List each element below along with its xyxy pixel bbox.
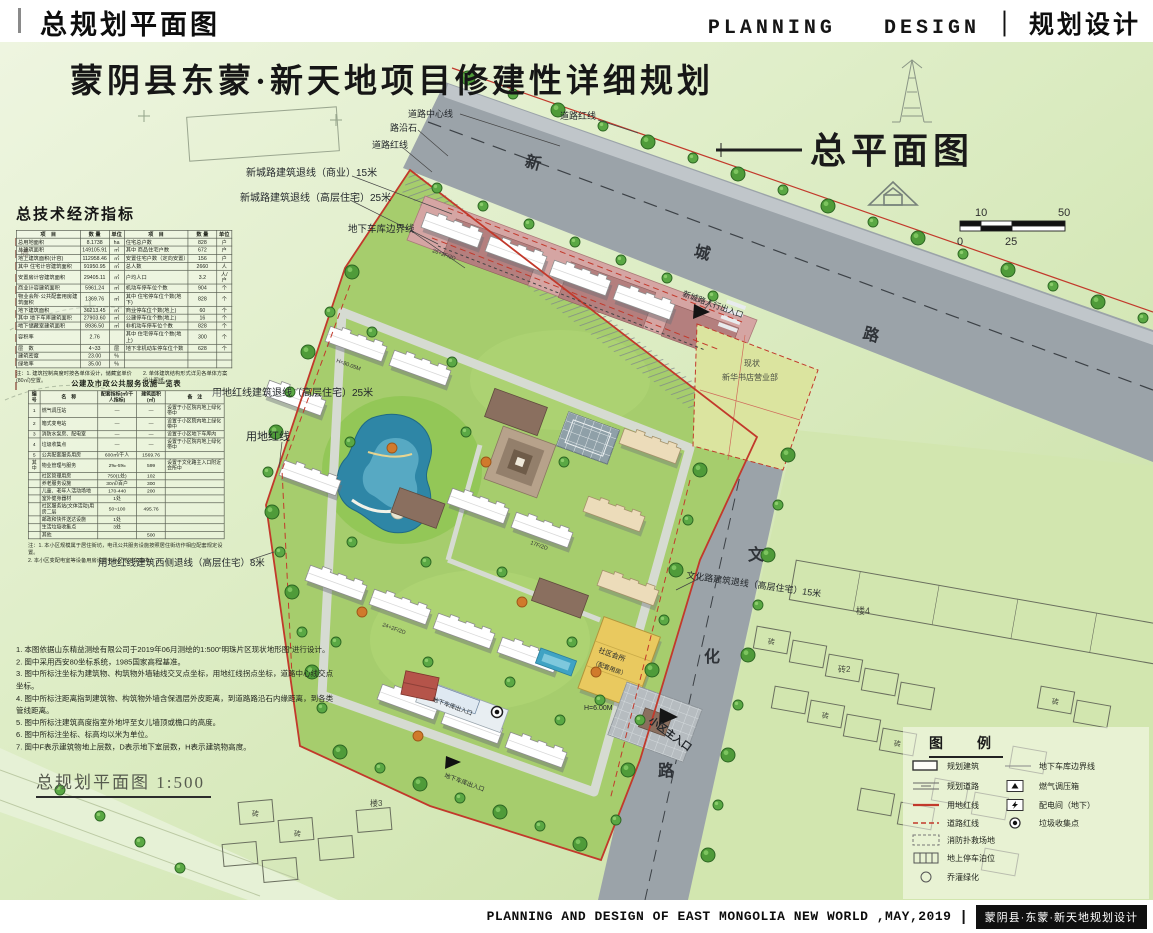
table-row: 3消防水泵房、配电室——设置于小区地下车库内 xyxy=(28,431,224,439)
table-cell: 599 xyxy=(137,459,166,472)
table-cell: 总人数 xyxy=(124,262,188,270)
legend-label: 用地红线 xyxy=(947,800,979,811)
table-cell: — xyxy=(137,404,166,417)
label-zhuan-c: 砖 xyxy=(894,739,901,748)
table-cell: 4~33 xyxy=(80,344,109,352)
table-cell: 其中 地下车库建筑面积 xyxy=(16,314,80,322)
indicators-table: 项 目 数 量 单位 项 目 数 量 单位 总用地面积8.1738ha住宅总户数… xyxy=(16,230,232,368)
legend-item-planned-road: 规划道路 xyxy=(911,779,979,793)
table-cell: 层 xyxy=(109,344,124,352)
facilities-notes: 注：1. 本小区规模属于居住街坊，电讯公共服务设施按照居住街坊作相应配套规定设置… xyxy=(28,542,224,564)
footer-bar: PLANNING AND DESIGN OF EAST MONGOLIA NEW… xyxy=(0,900,1153,933)
facilities-note-1: 注：1. 本小区规模属于居住街坊，电讯公共服务设施按照居住街坊作相应配套规定设置… xyxy=(28,542,224,557)
table-cell: 设置于小区地下车库内 xyxy=(165,431,224,439)
legend-item-gas-regulator: 燃气调压箱 xyxy=(1003,779,1079,793)
table-cell xyxy=(165,472,224,480)
table-cell: 300 xyxy=(137,480,166,488)
table-row: 物业会所·公共配套用房建筑面积1369.76㎡其中 住宅停车位个数(地下)828… xyxy=(16,292,231,306)
table-cell xyxy=(28,488,40,496)
table-cell: 200 xyxy=(137,488,166,496)
power-room-icon xyxy=(1003,798,1033,812)
label-wenhua-3: 路 xyxy=(658,761,675,780)
table-row: 邮政和快件送达设施1处 xyxy=(28,516,224,524)
plan-title: 总平面图 xyxy=(810,122,974,174)
label-existing-1: 现状 xyxy=(744,358,760,368)
drawing-notes-list: 1. 本图依据山东精益测绘有限公司于2019年06月测绘的1:500“明珠片区现… xyxy=(16,644,340,754)
trash-collection-point-icon xyxy=(492,707,503,718)
table-header-row: 项 目 数 量 单位 项 目 数 量 单位 xyxy=(16,230,231,238)
table-cell xyxy=(28,503,40,516)
table-cell xyxy=(28,516,40,524)
table-cell: 600㎡/千人 xyxy=(97,451,136,459)
legend-item-fire-rescue: 消防扑救场地 xyxy=(911,833,995,847)
table-cell: 物业管理与服务 xyxy=(40,459,97,472)
note-line: 6. 图中所标注坐标、标高均以米为单位。 xyxy=(16,729,340,741)
table-cell: 生活垃圾收集点 xyxy=(40,524,97,532)
table-cell xyxy=(137,524,166,532)
table-cell: ㎡ xyxy=(109,270,124,284)
legend-label: 地上停车泊位 xyxy=(947,853,995,864)
legend-label: 规划道路 xyxy=(947,781,979,792)
table-cell: 社区服务站(文体活动)用房二层 xyxy=(40,503,97,516)
table-row: 其中 住宅计容建筑面积91950.95㎡总人数2660人 xyxy=(16,262,231,270)
facilities-table: 编号 名 称 配套指标(㎡/千人指标) 建筑面积(㎡) 备 注 1燃气调压站——… xyxy=(28,390,224,539)
table-cell: — xyxy=(137,438,166,451)
table-cell: 2 xyxy=(28,417,40,430)
col-header: 名 称 xyxy=(40,391,97,404)
main-title: 蒙阴县东蒙·新天地项目修建性详细规划 xyxy=(70,54,714,102)
table-cell: 设置于小区院内地上绿化带中 xyxy=(165,417,224,430)
table-cell: 1369.76 xyxy=(80,292,109,306)
col-header: 数 量 xyxy=(80,230,109,238)
table-cell: 地下储藏室建筑面积 xyxy=(16,322,80,330)
legend-item-planned-building: 规划建筑 xyxy=(911,759,979,773)
table-cell: 养老服务设施 xyxy=(40,480,97,488)
col-header: 配套指标(㎡/千人指标) xyxy=(97,391,136,404)
table-cell: 个 xyxy=(217,292,232,306)
table-cell: 36213.45 xyxy=(80,306,109,314)
table-row: 儿童、老年人活动场地170-440200 xyxy=(28,488,224,496)
legend-item-garage-line: 地下车库边界线 xyxy=(1003,759,1095,773)
header-divider-bar xyxy=(18,8,21,33)
table-row: 其中物业管理与服务2‰-5‰599设置于文化路主入口附近会所中 xyxy=(28,459,224,472)
note-line: 4. 图中所标注距离指到建筑物、构筑物外墙含保温层外皮距离，到道路路沿石内缘距离… xyxy=(16,693,340,717)
table-cell: 3 xyxy=(28,431,40,439)
table-cell: 住宅总户数 xyxy=(124,238,188,246)
table-cell xyxy=(137,495,166,503)
table-cell: 邮政和快件送达设施 xyxy=(40,516,97,524)
table-cell: ㎡ xyxy=(109,314,124,322)
table-cell: 828 xyxy=(188,292,217,306)
table-cell xyxy=(165,516,224,524)
col-header: 建筑面积(㎡) xyxy=(137,391,166,404)
legend-label: 燃气调压箱 xyxy=(1039,781,1079,792)
legend-label: 垃圾收集点 xyxy=(1039,818,1079,829)
table-cell: 个 xyxy=(217,284,232,292)
table-cell: 1处 xyxy=(97,516,136,524)
tree-shrub-icon xyxy=(911,870,941,884)
table-cell xyxy=(124,352,188,360)
scale-0: 0 xyxy=(957,236,963,248)
label-lou3: 楼3 xyxy=(370,798,383,808)
table-cell: — xyxy=(97,417,136,430)
label-zhuan-a: 砖 xyxy=(768,637,775,646)
note-line: 1. 本图依据山东精益测绘有限公司于2019年06月测绘的1:500“明珠片区现… xyxy=(16,644,340,656)
legend-label: 乔灌绿化 xyxy=(947,872,979,883)
table-cell: 170-440 xyxy=(97,488,136,496)
table-cell xyxy=(124,360,188,368)
table-cell: 27903.60 xyxy=(80,314,109,322)
table-cell: ㎡ xyxy=(109,292,124,306)
label-wenhua-1: 文 xyxy=(748,545,765,564)
header-right-cn: 规划设计 xyxy=(1029,5,1141,41)
table-row: 5公共配套服务用房600㎡/千人1569.76 xyxy=(28,451,224,459)
table-cell: 物业会所·公共配套用房建筑面积 xyxy=(16,292,80,306)
table-row: 地上建筑面积(计容)112958.46㎡安置住宅户数（定向安置）156户 xyxy=(16,254,231,262)
table-cell xyxy=(188,360,217,368)
label-road-red-b: 道路红线 xyxy=(372,139,408,150)
table-row: 地下储藏室建筑面积8936.50㎡非机动车停车位个数828个 xyxy=(16,322,231,330)
table-cell: 机动车停车位个数 xyxy=(124,284,188,292)
label-setback-highrise: 新城路建筑退线（高层住宅）25米 xyxy=(240,191,391,204)
table-cell: 安置住宅户数（定向安置） xyxy=(124,254,188,262)
table-cell: 3处 xyxy=(97,524,136,532)
table-cell: 公共配套服务用房 xyxy=(40,451,97,459)
col-header: 项 目 xyxy=(124,230,188,238)
table-row: 4垃圾收集点——设置于小区院内地上绿化带中 xyxy=(28,438,224,451)
planned-building-icon xyxy=(911,759,941,773)
road-red-line-icon xyxy=(911,816,941,830)
table-cell: 户 xyxy=(217,246,232,254)
facilities-table-block: 公建及市政公共服务设施一览表 编号 名 称 配套指标(㎡/千人指标) 建筑面积(… xyxy=(28,378,233,662)
table-cell xyxy=(165,503,224,516)
table-cell: 其中 住宅计容建筑面积 xyxy=(16,262,80,270)
table-cell: % xyxy=(109,352,124,360)
table-cell: 50~100 xyxy=(97,503,136,516)
top-header-bar: 总规划平面图 PLANNING DESIGN ｜ 规划设计 xyxy=(0,0,1153,42)
label-road-center: 道路中心线 xyxy=(408,108,453,119)
header-left-title: 总规划平面图 xyxy=(40,3,220,42)
table-cell: 设置于文化路主入口附近会所中 xyxy=(165,459,224,472)
table-cell xyxy=(28,495,40,503)
table-cell: 60 xyxy=(188,306,217,314)
table-cell: 495.76 xyxy=(137,503,166,516)
table-cell: 社区管理用房 xyxy=(40,472,97,480)
table-cell: 个 xyxy=(217,306,232,314)
table-cell: 1569.76 xyxy=(137,451,166,459)
table-cell: 91950.95 xyxy=(80,262,109,270)
table-cell: 垃圾收集点 xyxy=(40,438,97,451)
table-cell: 总建筑面积 xyxy=(16,246,80,254)
table-cell: 总用地面积 xyxy=(16,238,80,246)
legend-label: 规划建筑 xyxy=(947,761,979,772)
table-cell: 设置于小区院内地上绿化带中 xyxy=(165,438,224,451)
indicators-title: 总技术经济指标 xyxy=(16,203,236,224)
note-line: 3. 图中所标注坐标为建筑物、构筑物外墙轴线交叉点坐标，用地红线拐点坐标，道路中… xyxy=(16,668,340,692)
table-row: 1燃气调压站——设置于小区院内地上绿化带中 xyxy=(28,404,224,417)
table-row: 建筑密度23.00% xyxy=(16,352,231,360)
table-cell: 2.76 xyxy=(80,330,109,344)
col-header: 单位 xyxy=(109,230,124,238)
table-cell xyxy=(109,330,124,344)
col-header: 备 注 xyxy=(165,391,224,404)
legend-item-trash-point: 垃圾收集点 xyxy=(1003,816,1079,830)
table-row: 社区服务站(文体活动)用房二层50~100495.76 xyxy=(28,503,224,516)
legend-title: 图 例 xyxy=(929,733,1003,758)
table-cell xyxy=(165,495,224,503)
col-header: 项 目 xyxy=(16,230,80,238)
scale-bar xyxy=(960,221,1065,231)
footer-badge: 蒙阴县·东蒙·新天地规划设计 xyxy=(976,905,1147,929)
table-cell: 904 xyxy=(188,284,217,292)
label-lou4: 楼4 xyxy=(856,605,870,616)
table-cell: 个 xyxy=(217,314,232,322)
label-clubhouse-height: H=6.00M xyxy=(584,705,613,712)
table-cell: ㎡ xyxy=(109,262,124,270)
header-right-divider: ｜ xyxy=(992,5,1017,41)
table-row: 其他500 xyxy=(28,531,224,539)
table-cell: 安置房计容建筑面积 xyxy=(16,270,80,284)
table-cell: 3.2 xyxy=(188,270,217,284)
planning-sheet: 10 50 0 25 道路中心线 道路红线 路沿石 道路红线 新城路建筑退线（商… xyxy=(0,0,1153,933)
legend-label: 配电间（地下） xyxy=(1039,800,1095,811)
col-header: 单位 xyxy=(217,230,232,238)
table-cell: 828 xyxy=(188,322,217,330)
table-cell: 1处 xyxy=(97,495,136,503)
table-cell: 层 数 xyxy=(16,344,80,352)
table-cell: 300 xyxy=(188,330,217,344)
legend-label: 消防扑救场地 xyxy=(947,835,995,846)
facilities-title: 公建及市政公共服务设施一览表 xyxy=(28,378,224,388)
label-curb: 路沿石 xyxy=(390,122,417,133)
legend-label: 地下车库边界线 xyxy=(1039,761,1095,772)
table-cell: ㎡ xyxy=(109,306,124,314)
table-cell: 其中 商品住宅户数 xyxy=(124,246,188,254)
planned-road-icon xyxy=(911,779,941,793)
table-cell xyxy=(165,488,224,496)
table-cell: 828 xyxy=(188,238,217,246)
table-cell: 设置于小区院内地上绿化带中 xyxy=(165,404,224,417)
table-cell: 156 xyxy=(188,254,217,262)
label-zhuan-f: 砖 xyxy=(294,829,301,838)
table-cell: 户 xyxy=(217,254,232,262)
legend-item-site-redline: 用地红线 xyxy=(911,798,979,812)
scale-25: 25 xyxy=(1005,236,1017,248)
gas-regulator-icon xyxy=(1003,779,1033,793)
label-wenhua-2: 化 xyxy=(704,647,720,666)
garage-boundary-line-icon xyxy=(1003,759,1033,773)
label-site-redline: 用地红线 xyxy=(246,429,290,443)
table-cell: ㎡ xyxy=(109,284,124,292)
table-cell xyxy=(97,531,136,539)
legend-item-road-redline: 道路红线 xyxy=(911,816,979,830)
table-row: 层 数4~33层地下非机动车停车位个数628个 xyxy=(16,344,231,352)
table-cell: 102 xyxy=(137,472,166,480)
table-cell: 500 xyxy=(137,531,166,539)
table-cell: 35.00 xyxy=(80,360,109,368)
col-header: 编号 xyxy=(28,391,40,404)
legend-label: 道路红线 xyxy=(947,818,979,829)
label-zhuan-d: 砖 xyxy=(1052,697,1059,706)
table-cell xyxy=(137,516,166,524)
table-row: 总建筑面积149105.91㎡其中 商品住宅户数672户 xyxy=(16,246,231,254)
table-cell: 地下建筑面积 xyxy=(16,306,80,314)
table-row: 绿地率35.00% xyxy=(16,360,231,368)
header-right-en: PLANNING DESIGN xyxy=(708,17,980,40)
label-zhuan-b: 砖 xyxy=(822,711,829,720)
legend-item-tree-shrub: 乔灌绿化 xyxy=(911,870,979,884)
table-cell: — xyxy=(97,404,136,417)
label-setback-commercial: 新城路建筑退线（商业）15米 xyxy=(246,166,377,179)
footer-divider: | xyxy=(961,908,965,925)
table-row: 其中 地下车库建筑面积27903.60㎡公建停车位个数(地上)16个 xyxy=(16,314,231,322)
table-cell: ㎡ xyxy=(109,322,124,330)
table-cell: ha xyxy=(109,238,124,246)
table-cell: 30㎡/百户 xyxy=(97,480,136,488)
table-row: 地下建筑面积36213.45㎡商业停车位个数(地上)60个 xyxy=(16,306,231,314)
table-cell: 5 xyxy=(28,451,40,459)
table-cell: 公建停车位个数(地上) xyxy=(124,314,188,322)
table-cell: 个 xyxy=(217,344,232,352)
label-zhuan2: 砖2 xyxy=(838,664,851,674)
table-cell xyxy=(165,524,224,532)
table-cell: 4 xyxy=(28,438,40,451)
table-cell: — xyxy=(97,438,136,451)
table-cell: 个 xyxy=(217,330,232,344)
note-line: 5. 图中所标注建筑高度指室外地坪至女儿墙顶或檐口的高度。 xyxy=(16,717,340,729)
table-cell: 箱式变电站 xyxy=(40,417,97,430)
surface-parking-icon xyxy=(911,851,941,865)
table-cell xyxy=(28,480,40,488)
table-cell: 16 xyxy=(188,314,217,322)
table-row: 容积率2.76其中 住宅停车位个数(地上)300个 xyxy=(16,330,231,344)
table-cell: 其中 住宅停车位个数(地下) xyxy=(124,292,188,306)
table-cell: 户均人口 xyxy=(124,270,188,284)
table-cell: 2‰-5‰ xyxy=(97,459,136,472)
table-cell: 儿童、老年人活动场地 xyxy=(40,488,97,496)
table-cell xyxy=(217,360,232,368)
table-cell: 户 xyxy=(217,238,232,246)
table-cell: 绿地率 xyxy=(16,360,80,368)
table-row: 总用地面积8.1738ha住宅总户数828户 xyxy=(16,238,231,246)
scale-50: 50 xyxy=(1058,207,1070,219)
table-cell xyxy=(28,524,40,532)
label-road-red-a: 道路红线 xyxy=(560,110,596,121)
table-cell: 8.1738 xyxy=(80,238,109,246)
table-cell: % xyxy=(109,360,124,368)
table-row: 生活垃圾收集点3处 xyxy=(28,524,224,532)
fire-rescue-area-icon xyxy=(911,833,941,847)
table-header-row: 编号 名 称 配套指标(㎡/千人指标) 建筑面积(㎡) 备 注 xyxy=(28,391,224,404)
table-cell: ㎡ xyxy=(109,246,124,254)
label-existing-2: 新华书店营业部 xyxy=(722,372,778,382)
table-cell xyxy=(217,352,232,360)
table-cell: — xyxy=(137,431,166,439)
table-cell: 人 xyxy=(217,262,232,270)
table-cell: 建筑密度 xyxy=(16,352,80,360)
table-cell xyxy=(28,472,40,480)
table-cell: 个 xyxy=(217,322,232,330)
table-cell: 人/户 xyxy=(217,270,232,284)
table-cell xyxy=(165,451,224,459)
table-row: 养老服务设施30㎡/百户300 xyxy=(28,480,224,488)
col-header: 数 量 xyxy=(188,230,217,238)
table-cell: 5961.24 xyxy=(80,284,109,292)
table-cell: 23.00 xyxy=(80,352,109,360)
table-cell: 1 xyxy=(28,404,40,417)
table-cell: 其中 住宅停车位个数(地上) xyxy=(124,330,188,344)
table-cell xyxy=(165,531,224,539)
table-cell: 2660 xyxy=(188,262,217,270)
table-cell: 其中 xyxy=(28,459,40,472)
note-line: 2. 图中采用西安80坐标系统，1985国家高程基准。 xyxy=(16,656,340,668)
table-cell: — xyxy=(137,417,166,430)
table-cell xyxy=(165,480,224,488)
table-cell: 燃气调压站 xyxy=(40,404,97,417)
table-row: 安置房计容建筑面积29405.11㎡户均人口3.2人/户 xyxy=(16,270,231,284)
note-line: 7. 图中F表示建筑物地上层数，D表示地下室层数，H表示建筑物高度。 xyxy=(16,742,340,754)
table-cell: 750(1处) xyxy=(97,472,136,480)
table-cell: ㎡ xyxy=(109,254,124,262)
legend-panel: 图 例 规划建筑 规划道路 用地红线 道路红线 消防扑救场地 地上停车泊位 乔灌… xyxy=(903,727,1149,899)
label-garage-boundary: 地下车库边界线 xyxy=(348,223,415,235)
table-cell: 商业停车位个数(地上) xyxy=(124,306,188,314)
table-cell: 112958.46 xyxy=(80,254,109,262)
table-cell: — xyxy=(97,431,136,439)
header-right-group: PLANNING DESIGN ｜ 规划设计 xyxy=(708,5,1141,41)
footer-en-text: PLANNING AND DESIGN OF EAST MONGOLIA NEW… xyxy=(487,909,952,924)
legend-item-surface-parking: 地上停车泊位 xyxy=(911,851,995,865)
legend-item-power-room: 配电间（地下） xyxy=(1003,798,1095,812)
table-row: 2箱式变电站——设置于小区院内地上绿化带中 xyxy=(28,417,224,430)
table-cell xyxy=(28,531,40,539)
table-cell: 室外健身器材 xyxy=(40,495,97,503)
table-cell: 672 xyxy=(188,246,217,254)
facilities-note-2: 2. 本小区变配电室等设备用房设置于小区地下车库内。 xyxy=(28,556,224,563)
label-redline-setback: 用地红线建筑退线（高层住宅）25米 xyxy=(212,386,373,399)
table-row: 室外健身器材1处 xyxy=(28,495,224,503)
site-red-line-icon xyxy=(911,798,941,812)
table-cell xyxy=(188,352,217,360)
table-cell: 非机动车停车位个数 xyxy=(124,322,188,330)
table-row: 商业计容建筑面积5961.24㎡机动车停车位个数904个 xyxy=(16,284,231,292)
table-cell: 8936.50 xyxy=(80,322,109,330)
table-row: 社区管理用房750(1处)102 xyxy=(28,472,224,480)
drawing-caption: 总规划平面图 1:500 xyxy=(36,768,211,798)
table-cell: 地上建筑面积(计容) xyxy=(16,254,80,262)
table-cell: 地下非机动车停车位个数 xyxy=(124,344,188,352)
table-cell: 容积率 xyxy=(16,330,80,344)
table-cell: 29405.11 xyxy=(80,270,109,284)
trash-point-icon xyxy=(1003,816,1033,830)
table-cell: 消防水泵房、配电室 xyxy=(40,431,97,439)
table-cell: 628 xyxy=(188,344,217,352)
scale-10: 10 xyxy=(975,207,987,219)
table-cell: 商业计容建筑面积 xyxy=(16,284,80,292)
table-cell: 其他 xyxy=(40,531,97,539)
table-cell: 149105.91 xyxy=(80,246,109,254)
